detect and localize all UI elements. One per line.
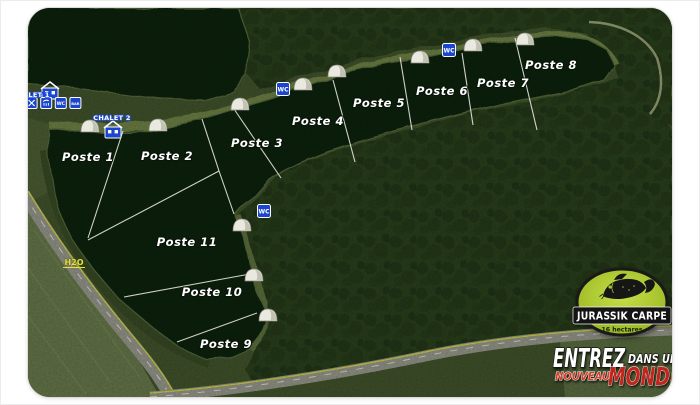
svg-text:WC: WC <box>258 208 270 215</box>
logo-badge: JURASSIK CARPE 16 hectares <box>573 269 671 335</box>
svg-text:WC: WC <box>443 47 455 54</box>
poste-label: Poste 2 <box>141 149 193 163</box>
chalet-label: CHALET 2 <box>93 114 130 122</box>
bar-icon: BAR <box>70 98 81 109</box>
poste-label: Poste 11 <box>157 235 217 249</box>
poste-label: Poste 7 <box>477 76 529 90</box>
tagline-nouveau: NOUVEAU <box>555 370 610 383</box>
svg-text:WC: WC <box>57 101 66 107</box>
chalet-label: CHALET 1 <box>28 91 50 99</box>
poste-label: Poste 9 <box>200 337 252 351</box>
poste-label: Poste 8 <box>525 58 577 72</box>
wc-icon: WC <box>258 205 271 218</box>
svg-text:WC: WC <box>277 86 289 93</box>
cutlery-icon <box>28 98 37 109</box>
poste-label: Poste 4 <box>292 114 344 128</box>
tagline-monde: MONDE <box>608 362 672 391</box>
logo-title: JURASSIK CARPE <box>576 310 667 323</box>
shower-icon <box>41 98 52 109</box>
poste-label: Poste 6 <box>416 84 468 98</box>
logo-subtitle: 16 hectares <box>601 327 642 334</box>
svg-text:H2O: H2O <box>64 258 83 267</box>
svg-text:BAR: BAR <box>71 102 80 106</box>
poste-label: Poste 10 <box>182 285 242 299</box>
poste-label: Poste 5 <box>353 96 405 110</box>
wc-icon: WC <box>443 44 456 57</box>
wc-icon: WC <box>55 98 66 109</box>
wc-icon: WC <box>277 83 290 96</box>
site-map: WCWCWCWCBAR CHALET 1CHALET 2Poste 1Poste… <box>28 8 672 397</box>
poste-label: Poste 1 <box>62 150 114 164</box>
map-image: WCWCWCWCBAR CHALET 1CHALET 2Poste 1Poste… <box>28 8 672 397</box>
screenshot-page: WCWCWCWCBAR CHALET 1CHALET 2Poste 1Poste… <box>0 0 700 405</box>
poste-label: Poste 3 <box>231 136 283 150</box>
water-point-label: H2O <box>63 258 85 268</box>
